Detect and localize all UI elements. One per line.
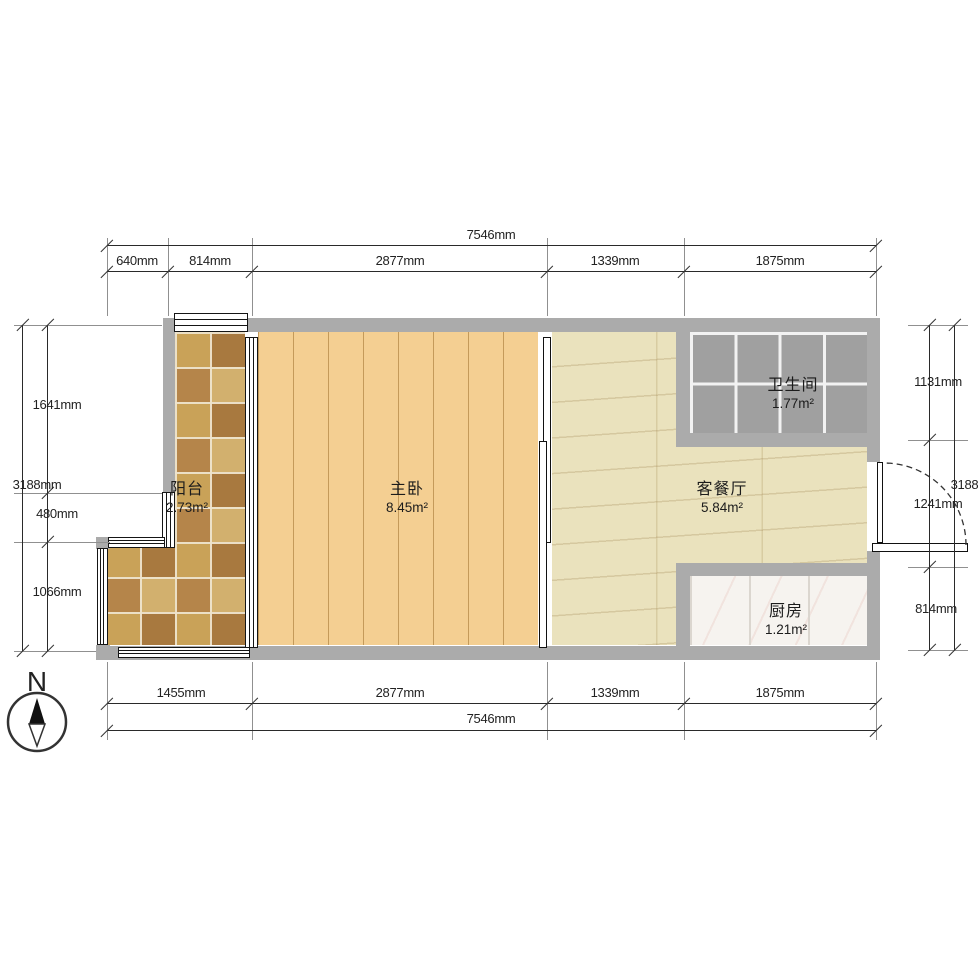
- room-area: 2.73m²: [132, 499, 242, 516]
- dim-label: 1875mm: [740, 253, 820, 268]
- ext-line: [684, 238, 685, 316]
- wall-corner-bottom-left: [96, 645, 110, 660]
- dim-label-top-total: 7546mm: [451, 227, 531, 242]
- dim-line-bottom-segments: [107, 703, 876, 704]
- wall-kitchen-left: [676, 563, 690, 660]
- ext-line: [14, 542, 110, 543]
- room-name: 卫生间: [738, 376, 848, 395]
- dim-label: 640mm: [97, 253, 177, 268]
- ext-line: [908, 440, 968, 441]
- room-name: 阳台: [132, 480, 242, 499]
- ext-line: [908, 567, 968, 568]
- ext-line: [107, 238, 108, 316]
- north-arrow-top: [29, 698, 45, 724]
- dim-label: 2877mm: [360, 685, 440, 700]
- ext-line: [168, 238, 169, 316]
- dim-label: 1241mm: [898, 496, 978, 511]
- room-label-bathroom: 卫生间 1.77m²: [738, 376, 848, 412]
- dim-label: 1339mm: [575, 685, 655, 700]
- wall-left-balcony: [163, 332, 175, 492]
- window-balcony-bedroom: [245, 337, 258, 648]
- ext-line: [14, 651, 96, 652]
- room-label-bedroom: 主卧 8.45m²: [352, 480, 462, 516]
- window-balcony-bottom: [118, 647, 250, 658]
- wall-living-bathroom: [676, 332, 690, 447]
- ext-line: [876, 238, 877, 316]
- ext-line: [252, 238, 253, 316]
- dim-label: 1339mm: [575, 253, 655, 268]
- ext-line: [14, 493, 162, 494]
- dim-line-bottom-total: [107, 730, 876, 731]
- window-extension-left: [97, 548, 108, 645]
- room-name: 厨房: [731, 602, 841, 621]
- dim-label-bottom-total: 7546mm: [451, 711, 531, 726]
- dim-label: 1455mm: [141, 685, 221, 700]
- dim-label-left-total: 3188mm: [0, 477, 77, 492]
- wall-bathroom-bottom: [676, 433, 880, 447]
- sliding-door-panel-left: [539, 441, 547, 648]
- dim-label: 1131mm: [898, 374, 978, 389]
- dim-label: 814mm: [170, 253, 250, 268]
- room-name: 主卧: [352, 480, 462, 499]
- window-extension-top: [108, 537, 165, 548]
- room-area: 8.45m²: [352, 499, 462, 516]
- ext-line: [547, 238, 548, 316]
- floor-plan: 阳台 2.73m² 主卧 8.45m² 卫生间 1.77m² 客餐厅 5.84m…: [0, 0, 978, 978]
- dim-label: 1641mm: [17, 397, 97, 412]
- dim-line-top-total: [107, 245, 876, 246]
- room-name: 客餐厅: [667, 480, 777, 499]
- ext-line: [14, 325, 162, 326]
- dim-label: 1875mm: [740, 685, 820, 700]
- room-label-living-dining: 客餐厅 5.84m²: [667, 480, 777, 516]
- dim-label: 814mm: [896, 601, 976, 616]
- dim-label-right-total: 3188mm: [935, 477, 978, 492]
- compass: N: [6, 660, 76, 760]
- north-arrow-bottom: [29, 724, 45, 746]
- room-label-kitchen: 厨房 1.21m²: [731, 602, 841, 638]
- room-area: 1.77m²: [738, 395, 848, 412]
- room-area: 1.21m²: [731, 621, 841, 638]
- wall-kitchen-top: [676, 563, 880, 576]
- window-balcony-top: [174, 313, 248, 332]
- dim-label: 1066mm: [17, 584, 97, 599]
- entry-door-frame: [877, 462, 883, 543]
- room-area: 5.84m²: [667, 499, 777, 516]
- dim-line-top-segments: [107, 271, 876, 272]
- dim-label: 2877mm: [360, 253, 440, 268]
- wall-top: [163, 318, 880, 332]
- ext-line: [908, 650, 968, 651]
- ext-line: [908, 325, 968, 326]
- balcony-floor-lower: [108, 548, 245, 645]
- dim-label: 480mm: [17, 506, 97, 521]
- room-label-balcony: 阳台 2.73m²: [132, 480, 242, 516]
